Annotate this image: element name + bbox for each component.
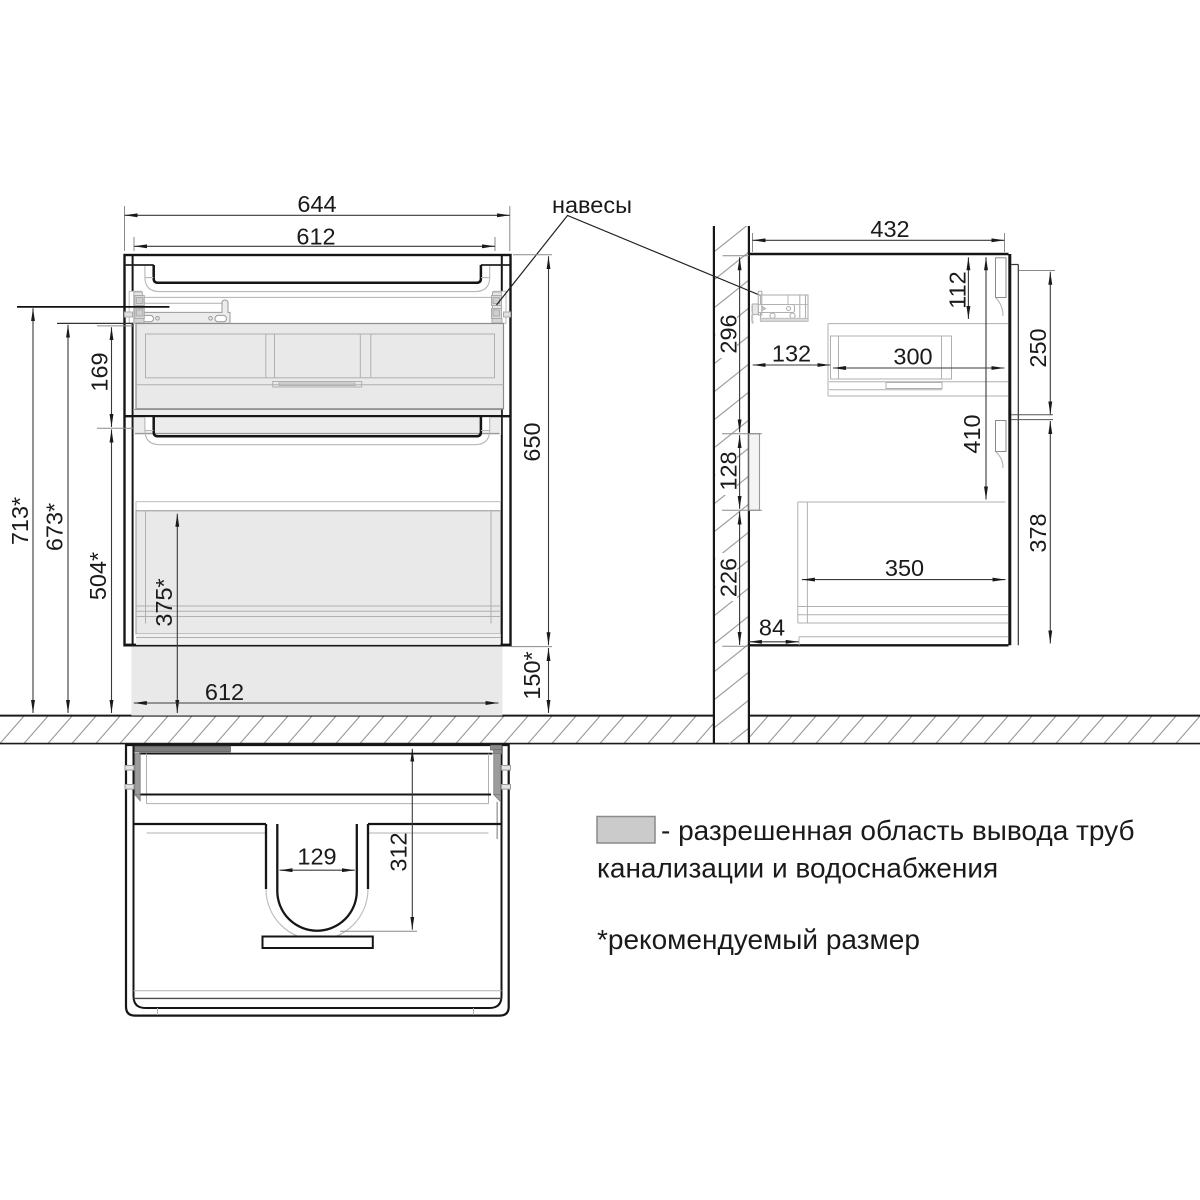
- svg-text:378: 378: [1025, 513, 1051, 552]
- svg-text:128: 128: [716, 451, 742, 490]
- svg-text:300: 300: [893, 344, 932, 370]
- svg-text:84: 84: [759, 615, 785, 641]
- svg-text:432: 432: [870, 216, 909, 242]
- svg-text:250: 250: [1025, 328, 1051, 367]
- svg-text:навесы: навесы: [552, 192, 632, 218]
- svg-text:296: 296: [716, 314, 742, 353]
- svg-text:713*: 713*: [7, 497, 33, 545]
- svg-text:112: 112: [945, 271, 971, 308]
- svg-text:312: 312: [386, 832, 412, 871]
- svg-text:350: 350: [885, 555, 924, 581]
- svg-text:150*: 150*: [519, 651, 545, 699]
- svg-text:226: 226: [716, 558, 742, 597]
- svg-text:*рекомендуемый размер: *рекомендуемый размер: [597, 924, 920, 955]
- svg-text:169: 169: [87, 352, 113, 391]
- svg-text:132: 132: [772, 341, 811, 367]
- svg-text:644: 644: [297, 191, 336, 217]
- svg-text:673*: 673*: [42, 503, 68, 551]
- svg-text:410: 410: [959, 414, 985, 453]
- svg-text:650: 650: [519, 422, 545, 461]
- svg-text:- разрешенная область вывода т: - разрешенная область вывода труб: [661, 815, 1134, 846]
- svg-text:375*: 375*: [151, 578, 177, 626]
- svg-text:129: 129: [297, 844, 336, 870]
- svg-text:612: 612: [296, 223, 335, 249]
- svg-text:612: 612: [205, 679, 244, 705]
- svg-text:канализации и водоснабжения: канализации и водоснабжения: [597, 853, 998, 884]
- svg-text:504*: 504*: [85, 552, 111, 600]
